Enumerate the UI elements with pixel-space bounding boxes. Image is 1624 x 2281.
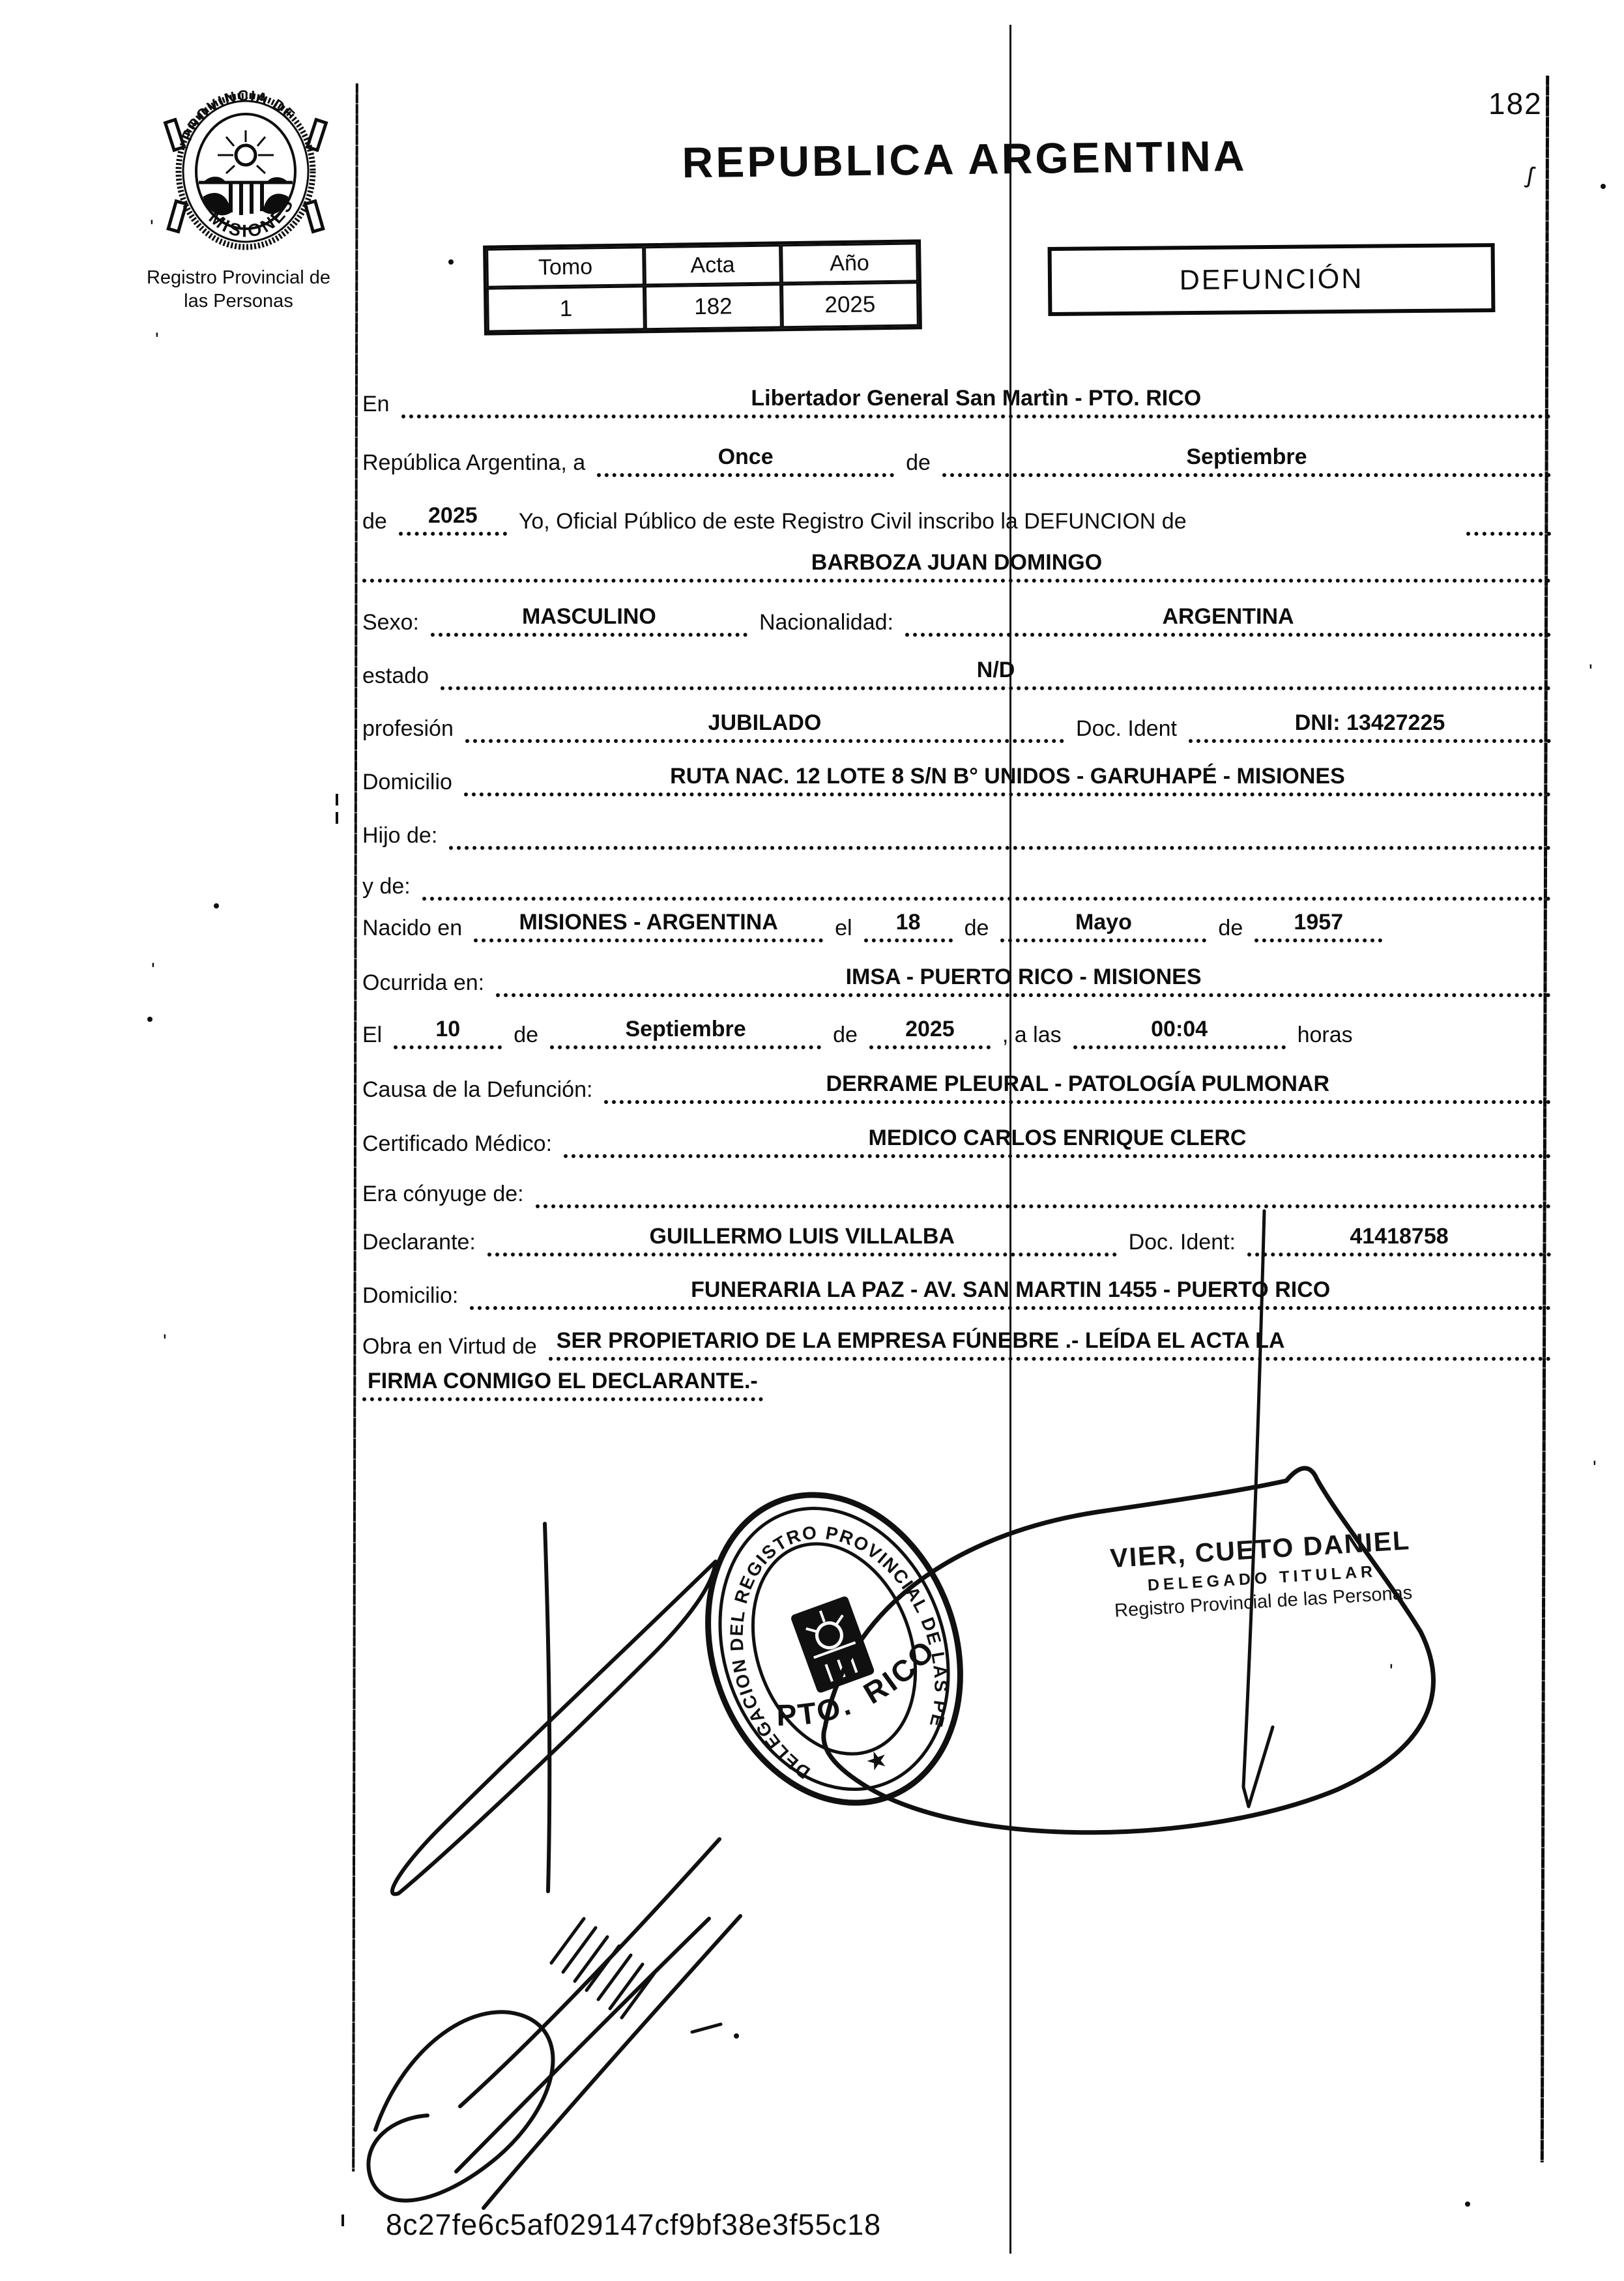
field-label-sexo: Sexo: — [362, 610, 419, 637]
org-name-line2: las Personas — [128, 289, 349, 313]
scanned-death-certificate: { "colors": {"ink": "#0d0d0d", "paper": … — [0, 0, 1624, 2281]
seal-star-icon: ★ — [862, 1744, 892, 1777]
form-row-death-date: El 10 de Septiembre de 2025 , a las 00:0… — [362, 1000, 1551, 1049]
field-label-de: de — [1218, 916, 1243, 942]
field-label-nacido-en: Nacido en — [362, 916, 462, 942]
provincia-misiones-seal-icon: PROVINCIA DE MISIONES — [158, 85, 334, 267]
scan-noise-mark: ' — [151, 959, 155, 981]
officer-stamp: VIER, CUETO DANIEL DELEGADO TITULAR Regi… — [1090, 1524, 1433, 1623]
field-declarant-name-value: GUILLERMO LUIS VILLALBA — [487, 1224, 1117, 1257]
form-row-date-words: República Argentina, a Once de Septiembr… — [362, 428, 1551, 477]
page-title: REPUBLICA ARGENTINA — [652, 130, 1278, 188]
form-row-place: En Libertador General San Martìn - PTO. … — [362, 369, 1551, 418]
field-label-de: de — [362, 509, 387, 536]
scan-noise-mark — [341, 2215, 344, 2226]
field-label-domicilio: Domicilio — [362, 770, 452, 796]
record-tomo-value: 1 — [487, 285, 645, 332]
form-row-birth: Nacido en MISIONES - ARGENTINA el 18 de … — [362, 893, 1551, 942]
field-death-time-value: 00:04 — [1073, 1017, 1286, 1049]
scan-noise-mark: ʃ — [1525, 162, 1535, 190]
record-acta-value: 182 — [645, 283, 782, 330]
scan-noise-mark: ' — [155, 329, 159, 351]
form-row-year-intro: de 2025 Yo, Oficial Público de este Regi… — [362, 486, 1551, 536]
field-doctor-value: MEDICO CARLOS ENRIQUE CLERC — [564, 1126, 1551, 1158]
field-label-estado: estado — [362, 663, 429, 690]
field-label-nacionalidad: Nacionalidad: — [759, 610, 893, 637]
field-birthplace-value: MISIONES - ARGENTINA — [474, 910, 823, 942]
scan-noise-mark — [336, 794, 338, 806]
form-row-marital-status: estado N/D — [362, 641, 1551, 690]
form-row-cause: Causa de la Defunción: DERRAME PLEURAL -… — [362, 1054, 1551, 1104]
field-death-day-value: 10 — [394, 1017, 502, 1049]
record-number-table: Tomo Acta Año 1 182 2025 — [483, 239, 922, 335]
form-row-medical-certificate: Certificado Médico: MEDICO CARLOS ENRIQU… — [362, 1109, 1551, 1158]
form-row-profession-id: profesión JUBILADO Doc. Ident DNI: 13427… — [362, 693, 1551, 743]
form-row-domicile: Domicilio RUTA NAC. 12 LOTE 8 S/N B° UNI… — [362, 747, 1551, 796]
scan-noise-mark: ' — [1389, 1661, 1393, 1683]
scan-noise-mark — [214, 903, 219, 908]
scan-noise-mark — [336, 812, 338, 824]
form-row-death-place: Ocurrida en: IMSA - PUERTO RICO - MISION… — [362, 948, 1551, 997]
scan-noise-mark: ' — [150, 216, 154, 239]
scan-noise-mark: ' — [163, 1331, 167, 1353]
document-type-box: DEFUNCIÓN — [1048, 243, 1496, 316]
scan-noise-mark — [448, 259, 454, 265]
org-name: Registro Provincial de las Personas — [128, 266, 349, 313]
field-label-doc-ident: Doc. Ident — [1076, 716, 1177, 743]
scan-noise-mark: ' — [1593, 1457, 1597, 1479]
form-row-closing: FIRMA CONMIGO EL DECLARANTE.- — [362, 1352, 1551, 1401]
center-fold-line — [1009, 25, 1011, 2254]
document-hash: 8c27fe6c5af029147cf9bf38e3f55c18 — [386, 2208, 881, 2242]
form-row-declarant: Declarante: GUILLERMO LUIS VILLALBA Doc.… — [362, 1207, 1551, 1257]
field-birth-day-value: 18 — [864, 910, 953, 942]
field-death-place-value: IMSA - PUERTO RICO - MISIONES — [496, 965, 1551, 997]
field-cause-value: DERRAME PLEURAL - PATOLOGÍA PULMONAR — [604, 1071, 1551, 1104]
org-name-line1: Registro Provincial de — [128, 266, 349, 289]
field-label-profesion: profesión — [362, 716, 454, 743]
field-label-conyuge: Era cónyuge de: — [362, 1182, 524, 1208]
record-table-header-tomo: Tomo — [486, 246, 645, 287]
form-row-spouse: Era cónyuge de: — [362, 1159, 1551, 1208]
field-label-causa: Causa de la Defunción: — [362, 1077, 592, 1104]
scan-noise-mark — [147, 1017, 152, 1022]
record-table-header-anio: Año — [781, 242, 918, 283]
field-label-doc-ident: Doc. Ident: — [1129, 1230, 1236, 1257]
page-number: 182 — [1488, 86, 1543, 121]
form-row-deceased-name: BARBOZA JUAN DOMINGO — [362, 533, 1551, 583]
field-label-en: En — [362, 392, 390, 418]
field-label-declarante: Declarante: — [362, 1230, 476, 1257]
field-death-month-value: Septiembre — [550, 1017, 821, 1049]
field-label-de: de — [514, 1023, 538, 1049]
field-profession-value: JUBILADO — [465, 710, 1064, 743]
field-label-el: El — [362, 1023, 382, 1049]
field-marital-status-value: N/D — [441, 658, 1551, 690]
field-dni-value: DNI: 13427225 — [1189, 710, 1551, 743]
field-place-value: Libertador General San Martìn - PTO. RIC… — [401, 386, 1551, 418]
field-label-hijo-de: Hijo de: — [362, 823, 437, 850]
field-closing-value: FIRMA CONMIGO EL DECLARANTE.- — [362, 1369, 763, 1401]
field-label-oficial-publico: Yo, Oficial Público de este Registro Civ… — [519, 509, 1187, 536]
left-page-border — [352, 83, 358, 2172]
field-domicile-value: RUTA NAC. 12 LOTE 8 S/N B° UNIDOS - GARU… — [464, 764, 1551, 796]
field-label-republica: República Argentina, a — [362, 450, 585, 477]
field-label-ocurrida-en: Ocurrida en: — [362, 970, 484, 997]
field-deceased-name-value: BARBOZA JUAN DOMINGO — [362, 550, 1551, 583]
form-row-father: Hijo de: — [362, 800, 1551, 850]
scan-noise-mark: ' — [1589, 661, 1593, 683]
field-label-el: el — [835, 916, 852, 942]
field-sex-value: MASCULINO — [431, 604, 747, 637]
field-birth-year-value: 1957 — [1254, 910, 1382, 942]
scan-noise-mark — [1465, 2201, 1470, 2207]
record-table-header-acta: Acta — [644, 244, 781, 285]
record-anio-value: 2025 — [781, 282, 919, 328]
field-label-certificado: Certificado Médico: — [362, 1131, 552, 1158]
record-table-header-row: Tomo Acta Año — [486, 242, 918, 287]
field-label-horas: horas — [1298, 1023, 1353, 1049]
field-death-year-value: 2025 — [869, 1017, 991, 1049]
scan-noise-mark — [1601, 184, 1606, 189]
delegation-round-seal: DELEGACION DEL REGISTRO PROVINCIAL DE LA… — [665, 1440, 1004, 1857]
field-day-word-value: Once — [597, 444, 894, 477]
form-row-declarant-domicile: Domicilio: FUNERARIA LA PAZ - AV. SAN MA… — [362, 1260, 1551, 1310]
field-month-value: Septiembre — [942, 444, 1551, 477]
record-table-value-row: 1 182 2025 — [487, 282, 919, 332]
field-label-de: de — [964, 916, 989, 942]
dotted-line-father — [449, 838, 1551, 850]
field-label-domicilio: Domicilio: — [362, 1283, 458, 1310]
field-declarant-dni-value: 41418758 — [1247, 1224, 1551, 1257]
field-birth-month-value: Mayo — [1000, 910, 1206, 942]
field-year-value: 2025 — [399, 503, 507, 536]
field-label-de: de — [906, 450, 931, 477]
field-label-de: de — [833, 1023, 858, 1049]
form-row-sex-nationality: Sexo: MASCULINO Nacionalidad: ARGENTINA — [362, 587, 1551, 637]
document-type-label: DEFUNCIÓN — [1179, 263, 1363, 296]
field-nationality-value: ARGENTINA — [905, 604, 1551, 637]
